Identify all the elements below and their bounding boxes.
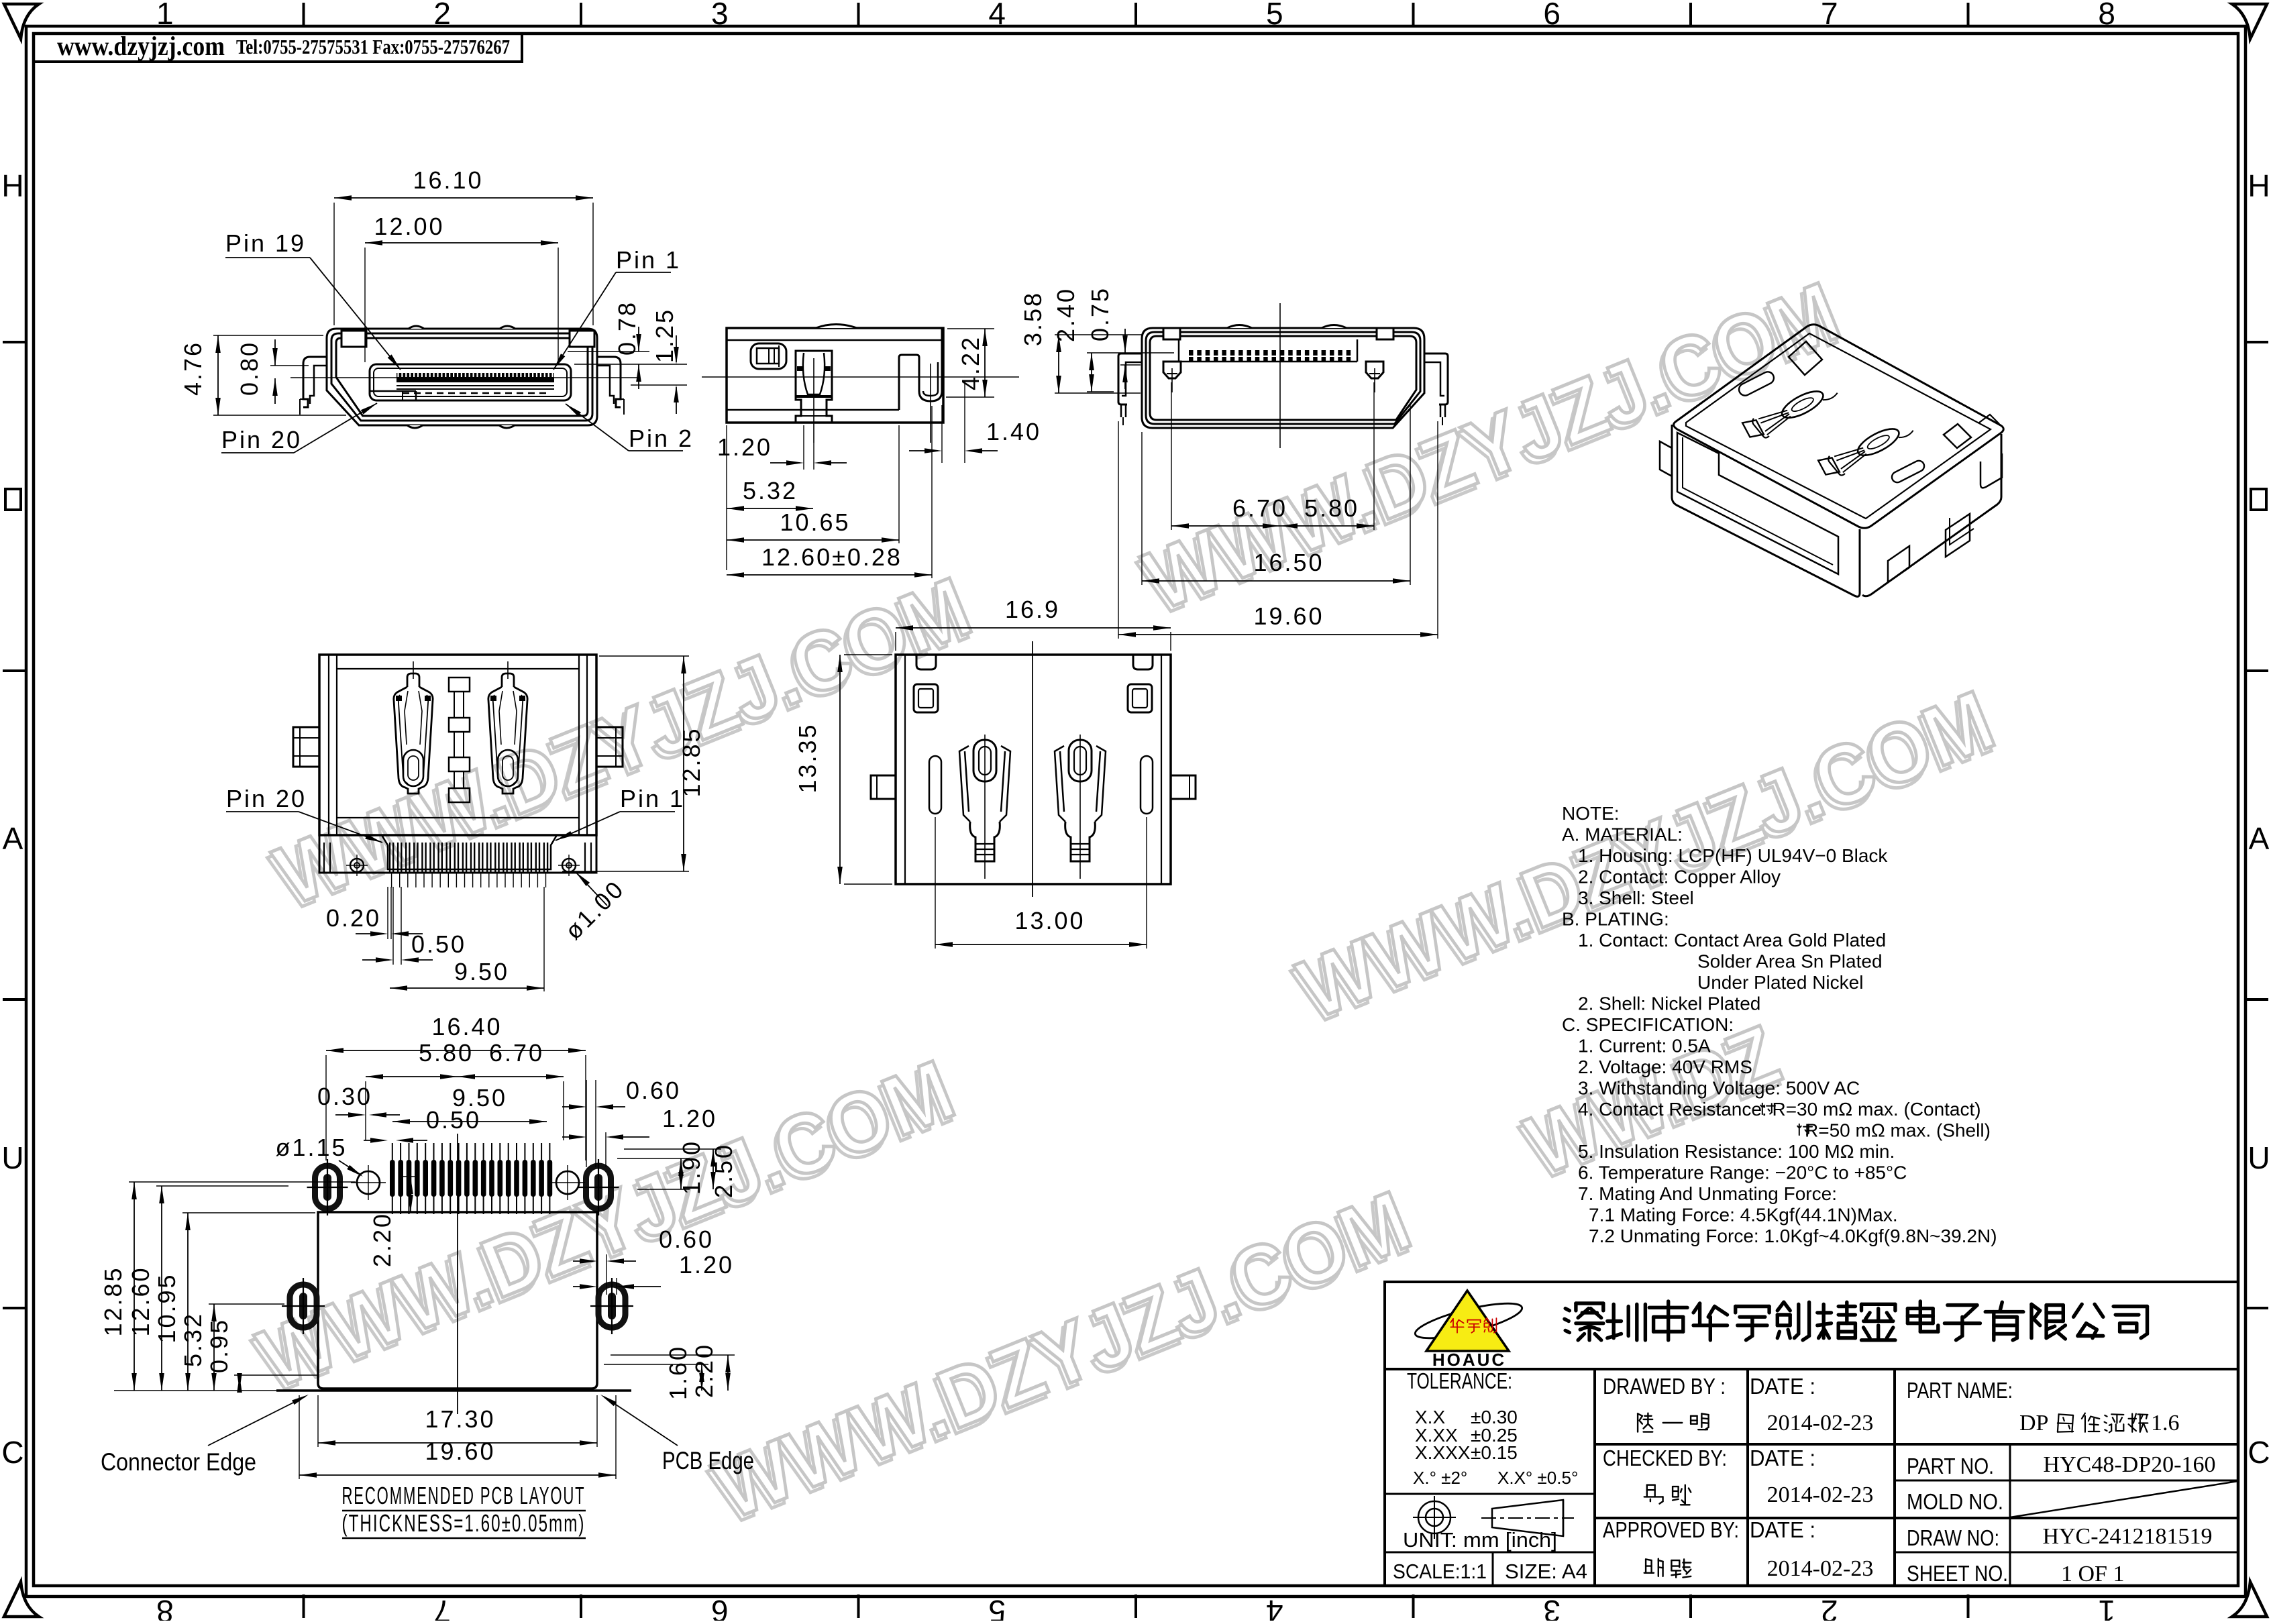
- svg-text:19.60: 19.60: [425, 1438, 495, 1465]
- svg-text:U: U: [2248, 1140, 2270, 1175]
- svg-text:(THICKNESS=1.60±0.05mm): (THICKNESS=1.60±0.05mm): [342, 1509, 586, 1537]
- svg-text:0.75: 0.75: [1086, 286, 1114, 341]
- svg-text:RECOMMENDED PCB LAYOUT: RECOMMENDED PCB LAYOUT: [342, 1482, 586, 1509]
- svg-text:B. PLATING:: B. PLATING:: [1562, 909, 1669, 930]
- svg-text:SHEET NO.: SHEET NO.: [1907, 1561, 2008, 1586]
- svg-text:MOLD NO.: MOLD NO.: [1907, 1489, 2003, 1514]
- svg-text:13.00: 13.00: [1014, 907, 1085, 934]
- svg-text:SCALE:1:1: SCALE:1:1: [1393, 1560, 1487, 1583]
- svg-text:2.50: 2.50: [710, 1143, 737, 1198]
- svg-text:Pin 19: Pin 19: [225, 229, 306, 257]
- svg-text:0.50: 0.50: [426, 1106, 481, 1134]
- svg-text:2014-02-23: 2014-02-23: [1767, 1482, 1874, 1507]
- svg-text:10.95: 10.95: [153, 1273, 180, 1343]
- svg-text:Tel:0755-27575531 Fax:0755-27: Tel:0755-27575531 Fax:0755-27576267: [236, 35, 510, 58]
- svg-text:2. Contact: Copper Alloy: 2. Contact: Copper Alloy: [1578, 867, 1781, 887]
- svg-text:7: 7: [433, 1594, 451, 1621]
- svg-text:2: 2: [433, 0, 451, 31]
- svg-text:2.20: 2.20: [690, 1343, 718, 1398]
- svg-text:C: C: [1, 1435, 23, 1470]
- svg-text:6: 6: [711, 1594, 729, 1621]
- svg-text:DRAWED BY :: DRAWED BY :: [1603, 1374, 1726, 1399]
- svg-text:HYC-2412181519: HYC-2412181519: [2042, 1524, 2212, 1549]
- svg-text:2.20: 2.20: [368, 1212, 396, 1267]
- svg-text:Connector Edge: Connector Edge: [101, 1448, 256, 1476]
- svg-text:0.95: 0.95: [205, 1318, 233, 1373]
- svg-text:R=50 mΩ max. (Shell): R=50 mΩ max. (Shell): [1805, 1120, 1991, 1141]
- svg-text:4.22: 4.22: [957, 335, 984, 390]
- svg-text:5. Insulation Resistance: 1: 5. Insulation Resistance: 100 MΩ min.: [1578, 1141, 1895, 1162]
- svg-text:6.70: 6.70: [489, 1039, 544, 1067]
- svg-text:17.30: 17.30: [425, 1405, 495, 1433]
- svg-text:±0.15: ±0.15: [1471, 1442, 1518, 1463]
- svg-text:1: 1: [156, 0, 174, 31]
- svg-text:0.80: 0.80: [235, 341, 263, 396]
- svg-text:3. Withstanding Voltage: 50: 3. Withstanding Voltage: 500V AC: [1578, 1078, 1860, 1099]
- svg-text:DATE :: DATE :: [1750, 1517, 1815, 1542]
- svg-text:www.dzyjzj.com: www.dzyjzj.com: [57, 31, 225, 61]
- svg-text:Pin 2: Pin 2: [629, 425, 694, 452]
- svg-text:C: C: [2248, 1435, 2270, 1470]
- svg-text:0.20: 0.20: [326, 904, 381, 932]
- svg-text:SIZE: A4: SIZE: A4: [1505, 1560, 1587, 1583]
- svg-text:5.80: 5.80: [1304, 494, 1359, 522]
- svg-text:CHECKED BY:: CHECKED BY:: [1603, 1446, 1727, 1470]
- svg-text:5.32: 5.32: [743, 477, 798, 504]
- svg-text:12.60±0.28: 12.60±0.28: [761, 543, 902, 571]
- svg-text:1: 1: [2098, 1594, 2115, 1621]
- svg-text:12.00: 12.00: [374, 213, 444, 240]
- svg-text:1. Current: 0.5A: 1. Current: 0.5A: [1578, 1036, 1711, 1057]
- svg-text:C. SPECIFICATION:: C. SPECIFICATION:: [1562, 1014, 1734, 1035]
- svg-text:1.40: 1.40: [986, 418, 1041, 445]
- svg-text:16.40: 16.40: [431, 1013, 502, 1040]
- svg-text:5: 5: [1266, 0, 1283, 31]
- svg-text:A. MATERIAL:: A. MATERIAL:: [1562, 824, 1683, 845]
- svg-text:Pin 1: Pin 1: [620, 785, 685, 812]
- svg-text:16.50: 16.50: [1253, 549, 1324, 576]
- svg-text:A: A: [3, 821, 23, 856]
- svg-text:NOTE:: NOTE:: [1562, 803, 1620, 824]
- svg-text:3.58: 3.58: [1019, 291, 1047, 346]
- svg-text:DP: DP: [2019, 1411, 2048, 1436]
- svg-text:DRAW NO:: DRAW NO:: [1907, 1525, 1999, 1550]
- svg-text:0.60: 0.60: [626, 1077, 681, 1104]
- svg-text:13.35: 13.35: [794, 722, 821, 793]
- svg-text:2014-02-23: 2014-02-23: [1767, 1556, 1874, 1581]
- svg-text:1.6: 1.6: [2151, 1411, 2180, 1436]
- svg-text:1 OF 1: 1 OF 1: [2061, 1562, 2124, 1586]
- svg-text:12.60: 12.60: [127, 1266, 154, 1336]
- svg-text:5: 5: [988, 1594, 1006, 1621]
- svg-text:APPROVED BY:: APPROVED BY:: [1603, 1517, 1739, 1542]
- svg-text:TOLERANCE:: TOLERANCE:: [1407, 1368, 1512, 1393]
- svg-text:6.70: 6.70: [1232, 494, 1287, 522]
- svg-text:16.9: 16.9: [1005, 596, 1060, 623]
- svg-text:8: 8: [156, 1594, 174, 1621]
- svg-text:7. Mating And Unmating For: 7. Mating And Unmating Force:: [1578, 1183, 1837, 1204]
- svg-text:5.80: 5.80: [419, 1039, 474, 1067]
- svg-text:0.30: 0.30: [317, 1083, 372, 1110]
- svg-text:U: U: [1, 1140, 23, 1175]
- svg-text:1.60: 1.60: [664, 1345, 692, 1400]
- svg-text:7.1 Mating Force: 4.5Kgf(: 7.1 Mating Force: 4.5Kgf(44.1N)Max.: [1589, 1205, 1898, 1226]
- svg-text:6: 6: [1543, 0, 1561, 31]
- svg-text:12.85: 12.85: [99, 1266, 127, 1336]
- svg-text:7.2 Unmating Force: 1.0Kgf~: 7.2 Unmating Force: 1.0Kgf~4.0Kgf(9.8N~3…: [1589, 1226, 1997, 1246]
- svg-text:HYC48-DP20-160: HYC48-DP20-160: [2044, 1452, 2216, 1477]
- svg-text:2. Shell: Nickel Plated: 2. Shell: Nickel Plated: [1578, 993, 1760, 1014]
- svg-text:PCB Edge: PCB Edge: [662, 1447, 754, 1474]
- svg-text:1.25: 1.25: [651, 308, 678, 363]
- svg-text:12.85: 12.85: [678, 726, 705, 797]
- svg-text:0.60: 0.60: [659, 1226, 714, 1253]
- svg-text:1.20: 1.20: [717, 433, 772, 461]
- svg-text:10.65: 10.65: [780, 508, 850, 536]
- svg-text:Pin 20: Pin 20: [221, 426, 302, 453]
- svg-text:3. Shell: Steel: 3. Shell: Steel: [1578, 887, 1694, 908]
- svg-text:2014-02-23: 2014-02-23: [1767, 1411, 1874, 1436]
- svg-text:H: H: [1, 168, 23, 203]
- svg-text:X.° ±2°: X.° ±2°: [1413, 1468, 1467, 1488]
- svg-text:16.10: 16.10: [413, 166, 483, 194]
- svg-text:7: 7: [1821, 0, 1838, 31]
- svg-text:1. Contact: Contact Area G: 1. Contact: Contact Area Gold Plated: [1578, 930, 1886, 951]
- svg-text:0.78: 0.78: [613, 301, 641, 356]
- svg-text:1. Housing: LCP(HF) UL94V−0: 1. Housing: LCP(HF) UL94V−0 Black: [1578, 845, 1888, 866]
- svg-text:3: 3: [1543, 1594, 1561, 1621]
- svg-text:Solder Area Sn Plated: Solder Area Sn Plated: [1697, 951, 1883, 972]
- svg-text:ø1.15: ø1.15: [275, 1134, 347, 1161]
- svg-text:HOAUC: HOAUC: [1432, 1350, 1506, 1370]
- svg-text:Under Plated Nickel: Under Plated Nickel: [1697, 972, 1863, 993]
- svg-text:PART NAME:: PART NAME:: [1907, 1378, 2013, 1403]
- svg-text:DATE :: DATE :: [1750, 1374, 1815, 1399]
- svg-text:1.20: 1.20: [679, 1251, 734, 1279]
- svg-text:Pin 20: Pin 20: [226, 785, 307, 812]
- svg-text:PART NO.: PART NO.: [1907, 1454, 1994, 1478]
- svg-text:8: 8: [2098, 0, 2115, 31]
- svg-text:2.40: 2.40: [1052, 287, 1079, 342]
- svg-text:9.50: 9.50: [454, 958, 509, 985]
- svg-text:2: 2: [1821, 1594, 1838, 1621]
- svg-text:DATE :: DATE :: [1750, 1446, 1815, 1470]
- svg-text:A: A: [2249, 821, 2270, 856]
- svg-text:1.20: 1.20: [662, 1105, 717, 1132]
- svg-text:0.50: 0.50: [411, 930, 466, 958]
- svg-text:6. Temperature Range: −20°C: 6. Temperature Range: −20°C to +85°C: [1578, 1162, 1907, 1183]
- svg-text:4: 4: [1266, 1594, 1283, 1621]
- svg-text:5.32: 5.32: [179, 1312, 207, 1367]
- svg-text:X.X° ±0.5°: X.X° ±0.5°: [1497, 1468, 1578, 1488]
- svg-text:19.60: 19.60: [1253, 602, 1324, 630]
- svg-text:4.76: 4.76: [179, 341, 207, 396]
- svg-text:4: 4: [988, 0, 1006, 31]
- svg-text:X.XXX: X.XXX: [1415, 1442, 1471, 1463]
- svg-text:Pin 1: Pin 1: [616, 246, 681, 274]
- svg-text:H: H: [2248, 168, 2270, 203]
- svg-text:3: 3: [711, 0, 729, 31]
- svg-text:2. Voltage: 40V RMS: 2. Voltage: 40V RMS: [1578, 1057, 1752, 1077]
- svg-text:4. Contact Resistance: R=: 4. Contact Resistance: R=30 mΩ max. (Con…: [1578, 1099, 1981, 1120]
